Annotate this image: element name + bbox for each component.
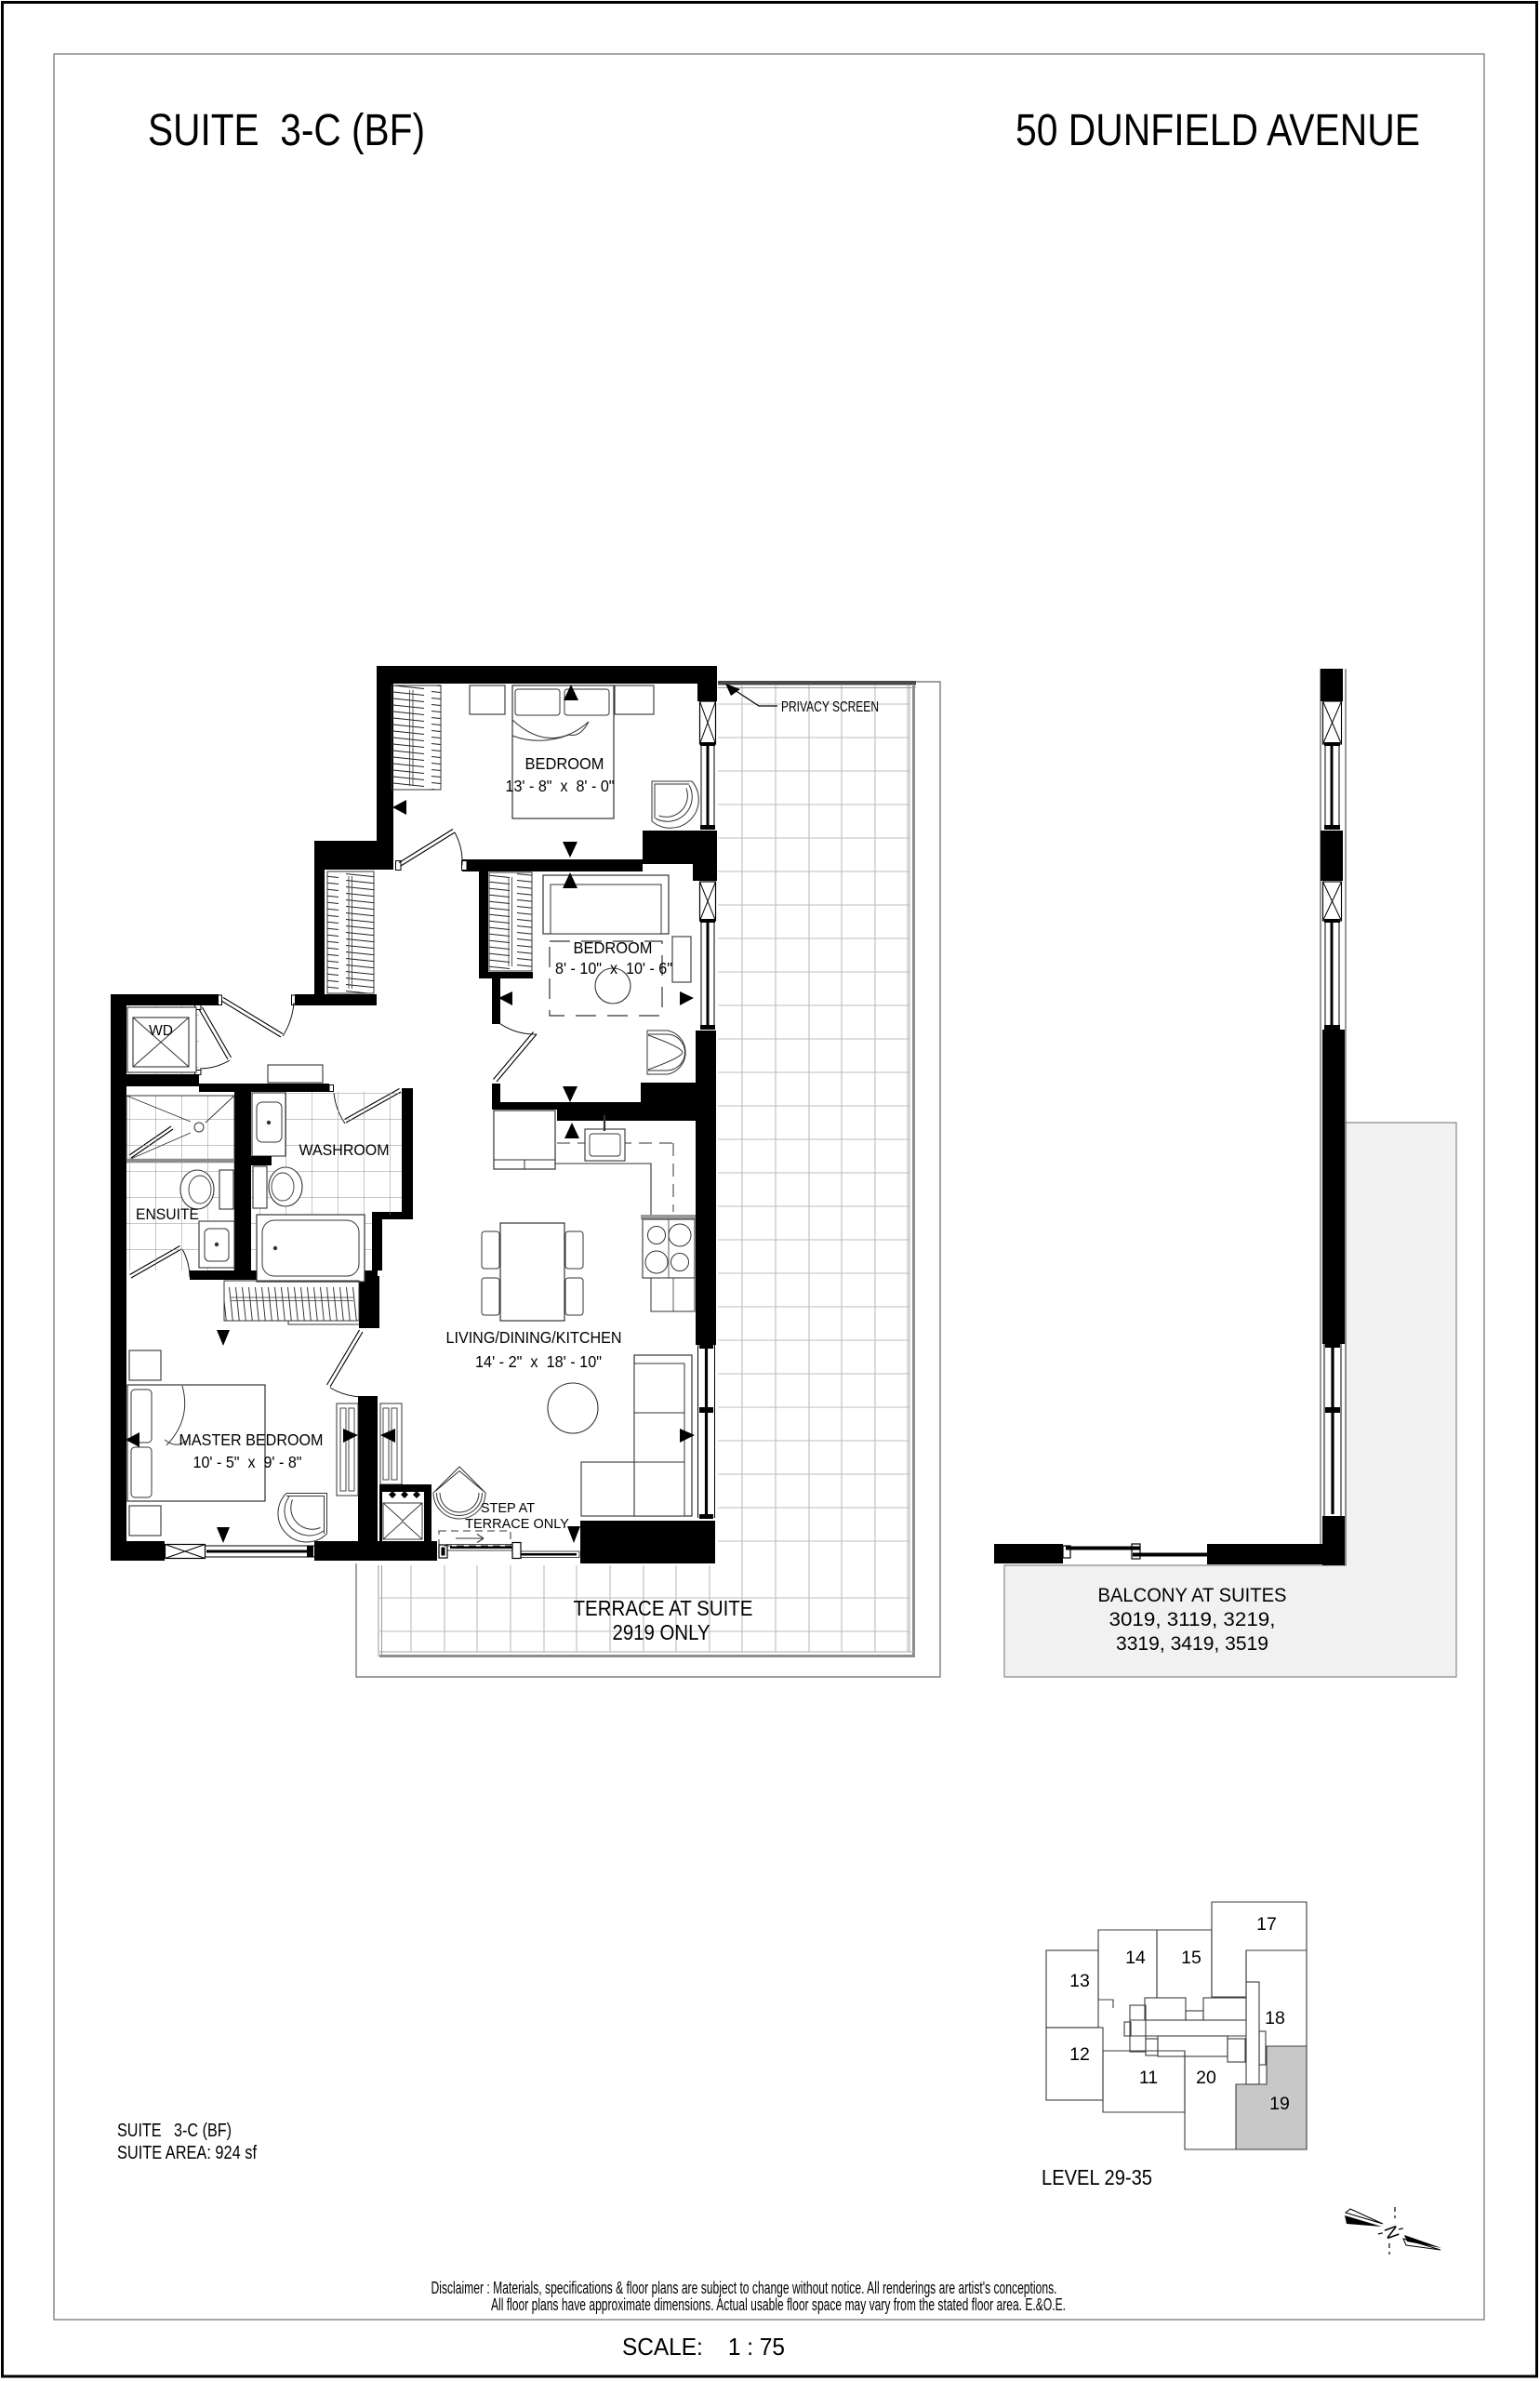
svg-text:SUITE 3-C (BF): SUITE 3-C (BF)	[117, 2121, 232, 2141]
svg-text:TERRACE AT SUITE: TERRACE AT SUITE	[574, 1596, 753, 1620]
svg-text:SUITE AREA: 924 sf: SUITE AREA: 924 sf	[117, 2143, 257, 2163]
svg-text:3019, 3119, 3219,: 3019, 3119, 3219,	[1109, 1608, 1276, 1630]
svg-text:2919 ONLY: 2919 ONLY	[613, 1620, 710, 1644]
svg-text:8' - 10" x 10' - 6": 8' - 10" x 10' - 6"	[555, 959, 672, 978]
svg-text:3319, 3419, 3519: 3319, 3419, 3519	[1116, 1632, 1268, 1655]
svg-text:BEDROOM: BEDROOM	[525, 754, 604, 773]
svg-text:20: 20	[1196, 2068, 1216, 2088]
svg-text:All floor plans have approxima: All floor plans have approximate dimensi…	[491, 2295, 1066, 2314]
svg-text:11: 11	[1139, 2068, 1158, 2088]
svg-text:PRIVACY SCREEN: PRIVACY SCREEN	[781, 699, 879, 715]
svg-text:50 DUNFIELD AVENUE: 50 DUNFIELD AVENUE	[1016, 106, 1420, 155]
svg-text:10' - 5" x 9' - 8": 10' - 5" x 9' - 8"	[193, 1453, 302, 1471]
svg-text:LIVING/DINING/KITCHEN: LIVING/DINING/KITCHEN	[446, 1328, 622, 1347]
svg-text:LEVEL 29-35: LEVEL 29-35	[1042, 2165, 1152, 2189]
svg-text:BALCONY AT SUITES: BALCONY AT SUITES	[1098, 1584, 1287, 1606]
svg-text:Disclaimer : Materials, specif: Disclaimer : Materials, specifications &…	[431, 2279, 1057, 2297]
svg-text:TERRACE ONLY: TERRACE ONLY	[465, 1517, 569, 1532]
svg-text:18: 18	[1265, 2008, 1285, 2029]
svg-text:SCALE: 1 : 75: SCALE: 1 : 75	[622, 2333, 785, 2361]
svg-text:17: 17	[1256, 1914, 1277, 1935]
svg-text:12: 12	[1069, 2044, 1090, 2065]
svg-text:WD: WD	[149, 1023, 173, 1039]
svg-text:MASTER BEDROOM: MASTER BEDROOM	[179, 1430, 324, 1449]
svg-text:BEDROOM: BEDROOM	[574, 938, 653, 957]
svg-text:WASHROOM: WASHROOM	[299, 1142, 390, 1159]
svg-text:STEP AT: STEP AT	[481, 1501, 535, 1516]
svg-text:SUITE 3-C (BF): SUITE 3-C (BF)	[148, 106, 425, 155]
svg-text:15: 15	[1181, 1948, 1201, 1968]
svg-text:13' - 8" x 8' - 0": 13' - 8" x 8' - 0"	[506, 777, 615, 795]
svg-text:14: 14	[1125, 1948, 1146, 1968]
svg-text:ENSUITE: ENSUITE	[136, 1206, 199, 1223]
svg-text:13: 13	[1069, 1971, 1090, 1991]
svg-text:19: 19	[1269, 2094, 1290, 2114]
svg-text:14' - 2" x 18' - 10": 14' - 2" x 18' - 10"	[475, 1352, 602, 1371]
